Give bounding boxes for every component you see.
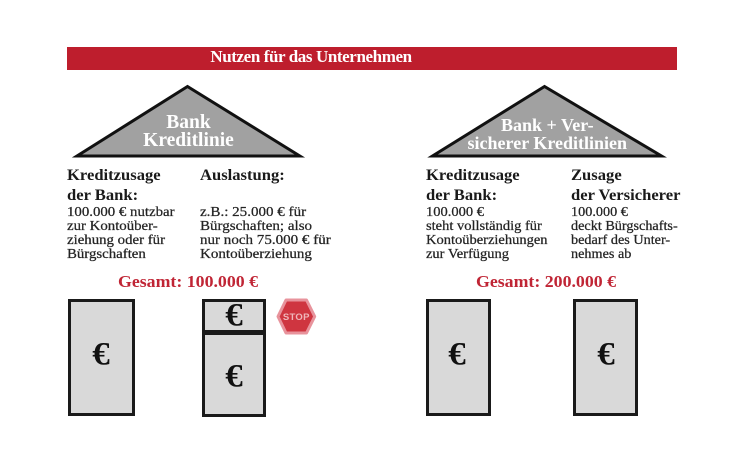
svg-text:STOP: STOP <box>283 311 310 322</box>
